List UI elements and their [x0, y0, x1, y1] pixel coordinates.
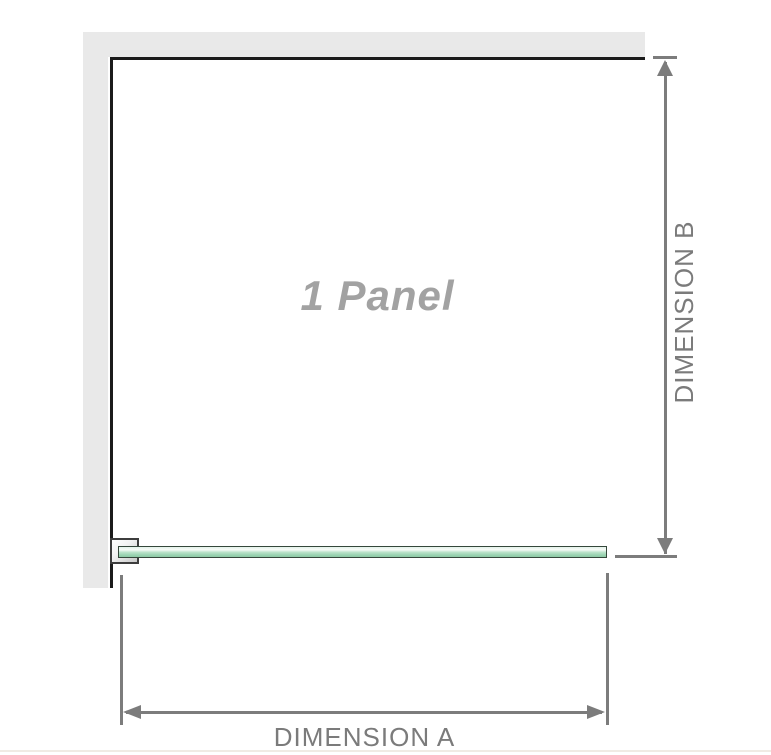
dimension-b-label: DIMENSION B	[669, 162, 699, 462]
glass-panel	[118, 546, 607, 558]
dimension-a-arrowhead-left	[123, 705, 141, 719]
dimension-a-extension-left	[120, 575, 123, 725]
dimension-a-line	[126, 711, 602, 714]
panel-outline-left	[110, 57, 113, 588]
wall-top	[83, 32, 645, 57]
dimension-a-extension-right	[606, 573, 609, 725]
dimension-a-arrowhead-right	[587, 705, 605, 719]
dimension-b-arrowhead-up	[657, 60, 673, 76]
dimension-b-arrowhead-down	[657, 538, 673, 554]
wall-left	[83, 32, 108, 588]
shower-panel-diagram: 1 Panel DIMENSION B DIMENSION A	[0, 0, 771, 755]
panel-outline-top	[110, 57, 645, 60]
dimension-b-tick-top	[653, 56, 677, 59]
page-bottom-edge	[0, 750, 771, 752]
panel-label: 1 Panel	[110, 272, 645, 320]
dimension-a-label: DIMENSION A	[121, 722, 608, 753]
dimension-b-line	[664, 62, 667, 554]
dimension-b-tick-bottom	[615, 555, 677, 558]
